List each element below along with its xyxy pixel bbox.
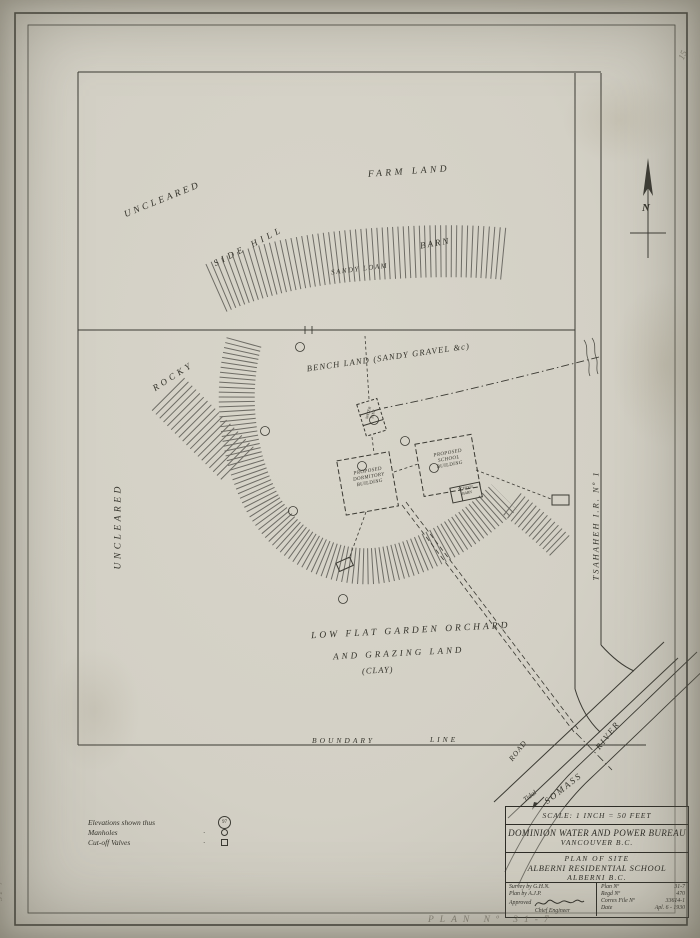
- plan-title-line1: PLAN OF SITE: [506, 854, 688, 863]
- label-line: LINE: [430, 736, 458, 744]
- hachure-slopes: [168, 251, 562, 566]
- scale-note: SCALE: 1 INCH = 50 FEET: [506, 807, 688, 825]
- legend-row-valves: Cut-off Valves ·: [88, 837, 231, 847]
- plan-no-value: 31-7: [674, 884, 685, 891]
- regd-no-label: Regd Nº: [601, 891, 620, 898]
- property-boundary: [78, 72, 646, 745]
- approved-label: Approved: [509, 900, 531, 907]
- outer-border: [15, 13, 687, 925]
- legend-leader: ·: [190, 838, 218, 847]
- credits-block: Survey by G.H.N. Plan by A.J.P. Approved…: [506, 883, 688, 916]
- creek-lines: [584, 338, 598, 376]
- organization-city: VANCOUVER B.C.: [506, 838, 688, 847]
- regd-no-value: 470: [676, 891, 685, 898]
- title-block: SCALE: 1 INCH = 50 FEET DOMINION WATER A…: [505, 806, 689, 918]
- label-uncleared-left: UNCLEARED: [115, 483, 125, 569]
- legend: Elevations shown thus 97 Manholes · Cut-…: [88, 817, 231, 847]
- pencil-mark-bottom: PLAN Nº 31-7: [428, 915, 555, 925]
- north-arrow-letter: N: [642, 203, 650, 214]
- survey-by: Survey by G.H.N.: [509, 884, 596, 891]
- plan-no-label: Plan Nº: [601, 884, 619, 891]
- organization-block: DOMINION WATER AND POWER BUREAU VANCOUVE…: [506, 825, 688, 853]
- credits-left: Survey by G.H.N. Plan by A.J.P. Approved…: [506, 883, 597, 916]
- label-boundary: BOUNDARY: [312, 737, 375, 745]
- plan-by: Plan by A.J.P.: [509, 891, 596, 898]
- date-label: Date: [601, 905, 612, 912]
- legend-elevations-label: Elevations shown thus: [88, 818, 190, 827]
- pipe-line: [384, 357, 599, 408]
- map-linework: [0, 0, 700, 938]
- label-tsahaheh-reserve: TSAHAHEH I.R. Nº 1: [592, 470, 601, 580]
- field-line: [78, 326, 575, 334]
- plan-title-block: PLAN OF SITE ALBERNI RESIDENTIAL SCHOOL …: [506, 853, 688, 883]
- scanned-plan-sheet: FARM LAND UNCLEARED SIDE HILL BARN SANDY…: [0, 0, 700, 938]
- file-no-value: 33614-1: [666, 898, 685, 905]
- legend-valves-label: Cut-off Valves: [88, 838, 190, 847]
- plan-title-line3: ALBERNI B.C.: [506, 873, 688, 882]
- organization-name: DOMINION WATER AND POWER BUREAU: [506, 828, 688, 838]
- label-low-flat-3: (CLAY): [362, 665, 394, 675]
- credits-right: Plan Nº31-7 Regd Nº470 Corres File Nº336…: [597, 883, 688, 916]
- plan-title-line2: ALBERNI RESIDENTIAL SCHOOL: [506, 863, 688, 873]
- legend-row-manholes: Manholes ·: [88, 827, 231, 837]
- legend-row-elevations: Elevations shown thus 97: [88, 817, 231, 827]
- legend-manholes-label: Manholes: [88, 828, 190, 837]
- road-shed-outline: [552, 495, 569, 505]
- date-value: Apl. 6 - 1930: [655, 905, 685, 912]
- legend-leader: ·: [190, 828, 218, 837]
- pencil-mark-left-margin: 31 7: [0, 879, 4, 901]
- file-no-label: Corres File Nº: [601, 898, 635, 905]
- elevation-symbol-icon: 97: [218, 816, 231, 829]
- manhole-symbol-icon: [221, 829, 228, 836]
- valve-symbol-icon: [221, 839, 228, 846]
